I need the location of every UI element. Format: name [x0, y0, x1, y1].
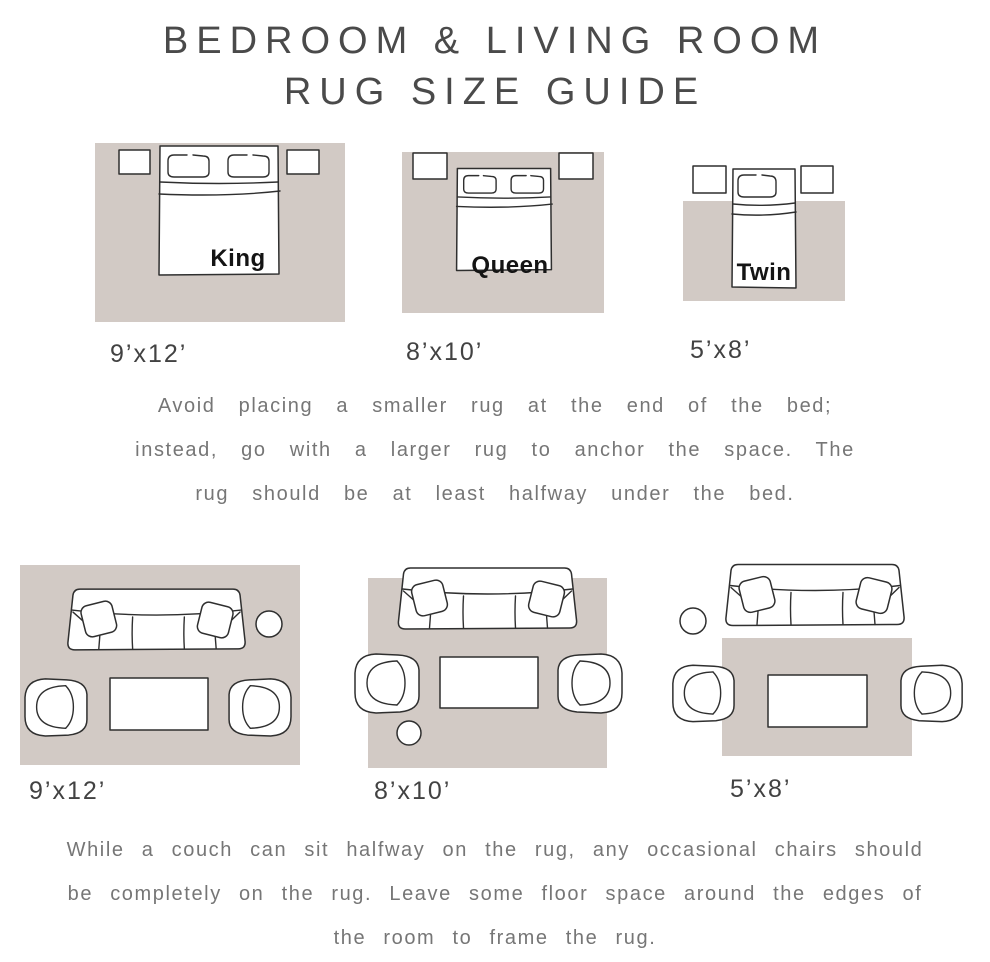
armchair-right-icon [229, 679, 291, 736]
sofa-icon [726, 565, 904, 626]
nightstand-right-icon [801, 166, 833, 193]
note-line: be completely on the rug. Leave some flo… [66, 872, 924, 916]
note-line: While a couch can sit halfway on the rug… [66, 828, 924, 872]
page-root: BEDROOM & LIVING ROOM RUG SIZE GUIDE Kin… [0, 0, 990, 962]
coffee-table-icon [110, 678, 208, 730]
bedroom-diagram-queen: Queen [402, 152, 604, 313]
side-table-icon [256, 611, 282, 637]
living-room-diagram-9x12 [20, 565, 300, 765]
bed-size-label: Twin [737, 259, 792, 286]
bedroom-diagram-king: King [95, 143, 345, 323]
rug-size-label: 5’x8’ [730, 775, 791, 804]
armchair-left-icon [673, 665, 734, 721]
coffee-table-icon [440, 657, 538, 708]
side-table-icon [680, 608, 706, 634]
armchair-left-icon [355, 654, 419, 713]
nightstand-left-icon [119, 150, 150, 174]
armchair-right-icon [558, 654, 622, 713]
sofa-icon [398, 568, 576, 629]
rug-size-label: 5’x8’ [690, 336, 751, 365]
nightstand-left-icon [693, 166, 726, 193]
note-line: rug should be at least halfway under the… [120, 472, 870, 516]
page-title-line-1: BEDROOM & LIVING ROOM [0, 16, 990, 67]
nightstand-right-icon [287, 150, 319, 174]
note-line: instead, go with a larger rug to anchor … [120, 428, 870, 472]
page-title: BEDROOM & LIVING ROOM RUG SIZE GUIDE [0, 16, 990, 118]
living-room-diagram-5x8 [660, 555, 970, 760]
rug-size-label: 8’x10’ [374, 777, 451, 806]
sofa-icon [68, 589, 245, 650]
bedroom-diagram-twin: Twin [683, 160, 845, 301]
armchair-left-icon [25, 679, 87, 736]
rug-size-label: 9’x12’ [29, 777, 106, 806]
page-title-line-2: RUG SIZE GUIDE [0, 67, 990, 118]
note-line: the room to frame the rug. [66, 916, 924, 960]
living-room-note: While a couch can sit halfway on the rug… [66, 828, 924, 960]
nightstand-left-icon [413, 153, 447, 179]
side-table-icon [397, 721, 421, 745]
bedroom-note: Avoid placing a smaller rug at the end o… [120, 384, 870, 516]
living-room-diagram-8x10 [350, 560, 626, 768]
rug-size-label: 9’x12’ [110, 340, 187, 369]
coffee-table-icon [768, 675, 867, 727]
note-line: Avoid placing a smaller rug at the end o… [120, 384, 870, 428]
rug-size-label: 8’x10’ [406, 338, 483, 367]
bed-size-label: Queen [471, 252, 548, 279]
bed-size-label: King [210, 245, 265, 272]
armchair-right-icon [901, 665, 962, 721]
nightstand-right-icon [559, 153, 593, 179]
